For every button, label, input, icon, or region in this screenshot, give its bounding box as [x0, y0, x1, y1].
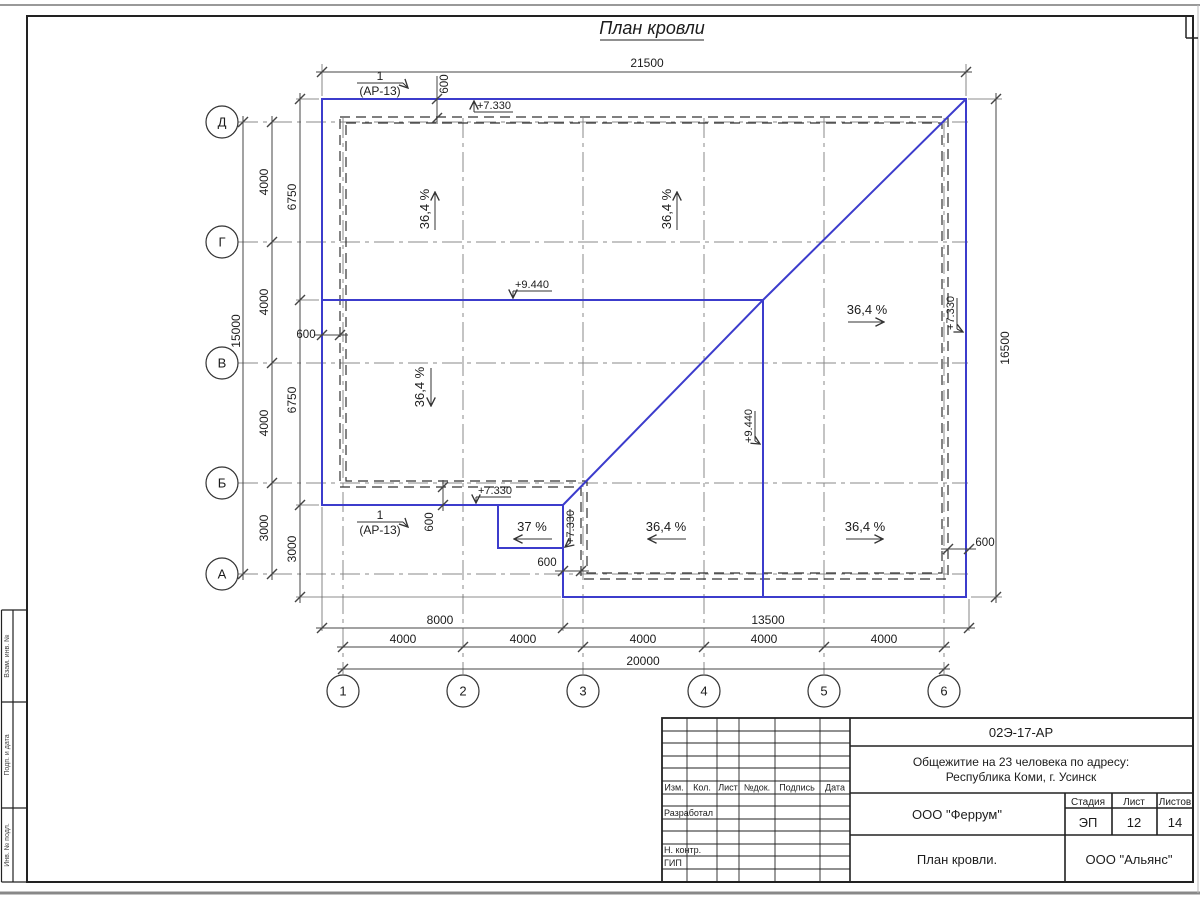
dim-left-inner-3: 3000: [285, 535, 299, 562]
wall-lines: [340, 117, 948, 579]
tb-doc-code: 02Э-17-АР: [989, 725, 1053, 740]
callout-top-number: 1: [377, 69, 384, 83]
dim-left-inner-2: 6750: [285, 386, 299, 413]
tb-col-ndok: №док.: [744, 783, 770, 793]
drawing-sheet: Взам. инв. № Подп. и дата Инв. № подл. П…: [0, 0, 1200, 900]
level-upper-ridge: +9.440: [515, 279, 549, 291]
callout-bottom-number: 1: [377, 508, 384, 522]
tb-stage-value: ЭП: [1079, 815, 1098, 830]
dim-top-total: 21500: [630, 56, 664, 70]
margin-label-inv: Инв. № подл.: [4, 823, 11, 867]
drawing-title-text: План кровли: [599, 18, 705, 38]
dim-right-height: 16500: [998, 331, 1012, 365]
dim-left-inner-1: 6750: [285, 183, 299, 210]
dim-left-step-2: 4000: [257, 288, 271, 315]
dim-overhang-left: 600: [296, 329, 315, 341]
axis-grid: [238, 118, 968, 674]
dim-overhang-notch: 600: [537, 557, 556, 569]
axis-row-v: В: [218, 356, 227, 371]
axis-col-3: 3: [579, 684, 586, 699]
dim-left-step-4: 3000: [257, 514, 271, 541]
axis-row-d: Д: [218, 115, 227, 130]
title-block: Изм. Кол. Лист №док. Подпись Дата Разраб…: [662, 718, 1193, 882]
axis-col-6: 6: [940, 684, 947, 699]
level-eaves-right: +7.330: [945, 296, 957, 330]
dim-left-total: 15000: [229, 314, 243, 348]
roof-valley-line: [563, 99, 966, 505]
level-upper-right: +9.440: [743, 409, 755, 443]
tb-col-kol: Кол.: [693, 783, 711, 793]
dim-bottom-step-1: 4000: [390, 632, 417, 646]
level-eaves-bottom-left: +7.330: [478, 485, 512, 497]
slope-2: 36,4 %: [659, 188, 674, 229]
level-eaves-top: +7.330: [477, 100, 511, 112]
dim-bottom-step-4: 4000: [751, 632, 778, 646]
roof-ridge-lines: [322, 300, 763, 597]
slope-6: 36,4 %: [646, 519, 687, 534]
tb-project-line2: Республика Коми, г. Усинск: [946, 770, 1097, 784]
tb-role-ncontrol: Н. контр.: [664, 845, 701, 855]
page-title: План кровли: [599, 18, 705, 40]
tb-org-customer: ООО "Альянс": [1086, 852, 1173, 867]
axis-col-5: 5: [820, 684, 827, 699]
dim-overhang-top: 600: [439, 74, 451, 93]
slope-canopy: 37 %: [517, 519, 547, 534]
tb-col-list: Лист: [718, 783, 738, 793]
dim-left-step-1: 4000: [257, 168, 271, 195]
callout-top-ref: (АР-13): [359, 84, 400, 98]
tb-role-gip: ГИП: [664, 858, 682, 868]
axis-col-4: 4: [700, 684, 707, 699]
axis-col-2: 2: [459, 684, 466, 699]
dimension-lines: [238, 64, 1002, 674]
dim-bottom-span-1: 8000: [427, 613, 454, 627]
slope-1: 36,4 %: [417, 188, 432, 229]
margin-label-vzam: Взам. инв. №: [4, 634, 11, 677]
slope-7: 36,4 %: [845, 519, 886, 534]
tb-col-podpis: Подпись: [779, 783, 815, 793]
tb-col-izm: Изм.: [664, 783, 683, 793]
dim-bottom-step-2: 4000: [510, 632, 537, 646]
tb-drawing-title: План кровли.: [917, 852, 997, 867]
level-marks: +7.330 +9.440 +7.330 +7.330 +9.440 +7.33…: [474, 100, 963, 547]
axis-row-b: Б: [218, 476, 227, 491]
tb-sheets-value: 14: [1168, 815, 1182, 830]
tb-role-developer: Разработал: [664, 808, 713, 818]
slope-3: 36,4 %: [847, 302, 888, 317]
margin-label-podp: Подп. и дата: [4, 734, 11, 775]
dim-overhang-bottom-left: 600: [424, 512, 436, 531]
callout-bottom-ref: (АР-13): [359, 523, 400, 537]
axis-row-a: А: [218, 567, 227, 582]
tb-sheet-label: Лист: [1123, 797, 1145, 808]
level-eaves-notch: +7.330: [565, 510, 577, 544]
dim-left-step-3: 4000: [257, 409, 271, 436]
tb-sheets-label: Листов: [1159, 797, 1192, 808]
axis-row-g: Г: [218, 235, 225, 250]
callouts: 1 (АР-13) 1 (АР-13): [357, 69, 408, 537]
tb-project-line1: Общежитие на 23 человека по адресу:: [913, 755, 1129, 769]
dim-overhang-bottom-right: 600: [975, 537, 994, 549]
tb-org-design: ООО "Феррум": [912, 807, 1002, 822]
tb-stage-label: Стадия: [1071, 797, 1105, 808]
dim-bottom-step-3: 4000: [630, 632, 657, 646]
dim-bottom-span-2: 13500: [751, 613, 785, 627]
tb-sheet-value: 12: [1127, 815, 1141, 830]
tb-col-data: Дата: [825, 783, 845, 793]
dim-bottom-step-5: 4000: [871, 632, 898, 646]
slope-4: 36,4 %: [412, 366, 427, 407]
axis-col-1: 1: [339, 684, 346, 699]
dim-bottom-total: 20000: [626, 654, 660, 668]
